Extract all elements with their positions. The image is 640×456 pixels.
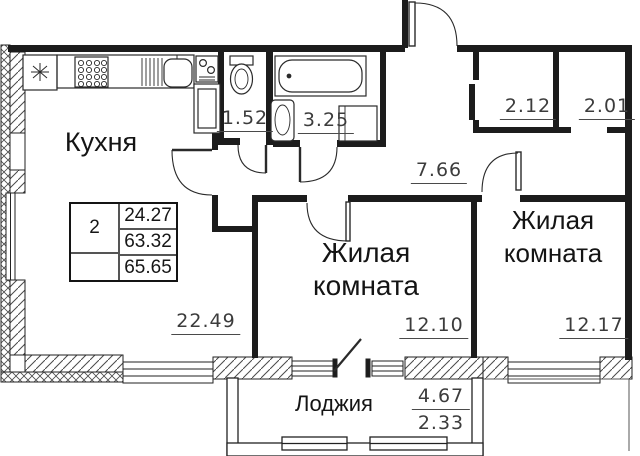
bath-right-wall <box>380 52 386 147</box>
kitchen-counter <box>57 55 194 88</box>
kitchen-area: 22.49 <box>171 310 240 335</box>
bathroom-sink-icon <box>271 100 294 141</box>
kitchen-door <box>172 150 212 195</box>
bathtub-icon <box>275 56 366 96</box>
kitchen-fixtures <box>23 55 220 133</box>
wc-door <box>238 145 266 173</box>
area-without-loggia-value: 63.32 <box>120 230 176 256</box>
living-right-label-line1: Жилая <box>512 207 594 234</box>
entry-jamb <box>402 0 408 48</box>
loggia-area-reduced: 2.33 <box>412 410 470 434</box>
entry-door <box>409 2 457 46</box>
closet-divider <box>553 52 559 133</box>
toilet-icon <box>230 56 253 94</box>
living-area-value: 24.27 <box>120 204 176 230</box>
living-mid-label-line1: Жилая <box>322 238 411 267</box>
bathroom-area: 3.25 <box>298 109 354 134</box>
right-wall <box>625 45 632 360</box>
balcony-window-right <box>372 361 403 376</box>
closet-left-area: 2.12 <box>500 95 556 120</box>
utility-box-icon <box>196 56 218 82</box>
top-wall <box>8 45 405 52</box>
rooms-divider-wall <box>471 195 477 358</box>
hallway-area: 7.66 <box>411 159 467 184</box>
balcony-window-left <box>292 361 335 376</box>
midroom-left-wall <box>252 197 258 358</box>
nook-wall <box>212 226 258 232</box>
interior-walls <box>8 0 632 360</box>
kitchen-sink-icon <box>164 55 192 87</box>
bathroom-door <box>300 147 337 182</box>
loggia-label: Лоджия <box>295 392 373 415</box>
floor-plan: Кухня Жилая комната Жилая комната Лоджия… <box>0 0 640 456</box>
loggia-area-fraction: 4.67 2.33 <box>412 385 470 434</box>
living-mid-label-line2: комната <box>313 271 419 300</box>
total-area-value: 65.65 <box>120 256 176 280</box>
wall-niche <box>10 133 25 170</box>
kitchen-label: Кухня <box>65 128 137 156</box>
drainer-icon <box>142 58 162 86</box>
living-right-area: 12.17 <box>559 314 628 339</box>
wc-area: 1.52 <box>217 107 273 132</box>
closet-right-area: 2.01 <box>579 95 635 120</box>
top-wall-right <box>457 45 632 52</box>
closet-left-wall <box>469 84 475 120</box>
neighbor-outline <box>483 379 629 451</box>
closet-bottom-wall <box>607 127 625 133</box>
living-right-label-line2: комната <box>504 240 602 267</box>
rooms-top-wall <box>520 195 625 202</box>
closet-bottom-wall <box>559 127 571 133</box>
hob-icon <box>75 57 108 87</box>
rightroom-door <box>482 152 521 192</box>
fridge-icon <box>23 55 57 90</box>
kitchen-window <box>123 362 213 383</box>
apartment-info-table: 2 24.27 63.32 65.65 <box>69 202 178 282</box>
left-window <box>6 193 15 280</box>
empty-cell <box>71 254 118 280</box>
balcony-door-jamb <box>366 359 370 377</box>
balcony-door-leaf <box>334 339 361 371</box>
closet-left-wall <box>473 120 479 133</box>
loggia-area-full: 4.67 <box>412 385 470 410</box>
living-mid-area: 12.10 <box>399 314 468 339</box>
midroom-door <box>307 202 350 241</box>
rooms-top-wall <box>348 195 482 202</box>
rooms-count: 2 <box>71 204 118 254</box>
rooms-top-wall <box>252 195 307 202</box>
wc-bottom-wall <box>218 138 240 145</box>
closet-left-wall <box>473 52 479 80</box>
closet-bottom-wall <box>473 127 553 133</box>
right-room-window <box>508 362 600 383</box>
